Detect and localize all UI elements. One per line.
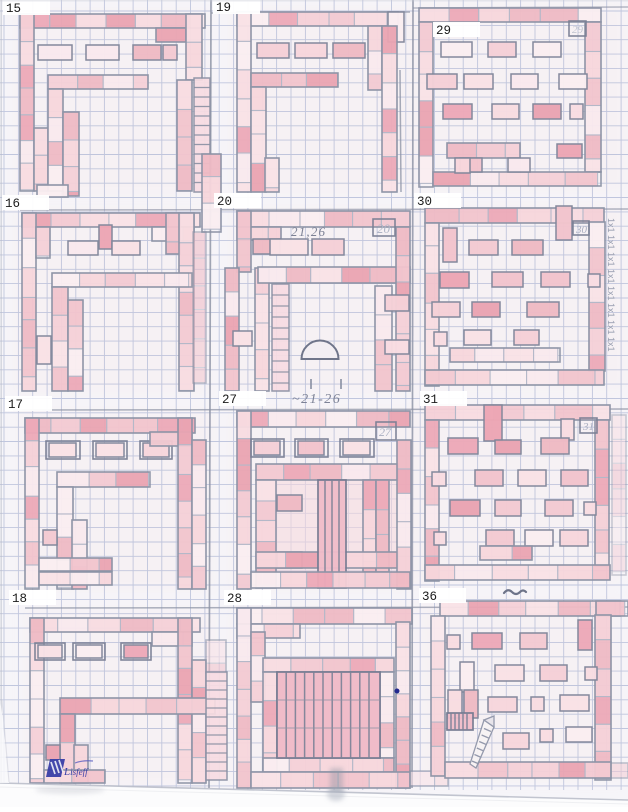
svg-text:16: 16 bbox=[5, 197, 20, 211]
svg-text:~21-26: ~21-26 bbox=[292, 392, 341, 407]
svg-text:1x1: 1x1 bbox=[606, 218, 616, 233]
svg-text:30: 30 bbox=[417, 195, 432, 209]
svg-text:1x1: 1x1 bbox=[606, 337, 616, 352]
svg-text:28: 28 bbox=[227, 592, 242, 606]
svg-text:21,26: 21,26 bbox=[291, 224, 326, 239]
svg-text:Lisfeff: Lisfeff bbox=[63, 766, 89, 778]
svg-text:27: 27 bbox=[222, 393, 237, 407]
svg-text:18: 18 bbox=[12, 592, 27, 606]
svg-text:36: 36 bbox=[422, 590, 437, 604]
svg-text:20: 20 bbox=[377, 221, 391, 236]
svg-text:1x1: 1x1 bbox=[606, 286, 616, 301]
svg-text:19: 19 bbox=[216, 1, 231, 15]
svg-text:1x1: 1x1 bbox=[606, 320, 616, 335]
svg-text:29: 29 bbox=[436, 24, 451, 38]
svg-text:15: 15 bbox=[6, 2, 21, 16]
svg-text:30: 30 bbox=[575, 224, 588, 236]
svg-text:1x1: 1x1 bbox=[606, 303, 616, 318]
svg-text:20: 20 bbox=[217, 195, 232, 209]
svg-text:1x1: 1x1 bbox=[606, 269, 616, 284]
svg-text:31: 31 bbox=[423, 393, 438, 407]
svg-text:17: 17 bbox=[8, 398, 23, 412]
svg-text:31: 31 bbox=[582, 421, 594, 433]
svg-text:1x1: 1x1 bbox=[606, 235, 616, 250]
svg-text:29: 29 bbox=[572, 24, 584, 36]
svg-text:1x1: 1x1 bbox=[606, 252, 616, 267]
svg-text:27: 27 bbox=[379, 425, 392, 439]
